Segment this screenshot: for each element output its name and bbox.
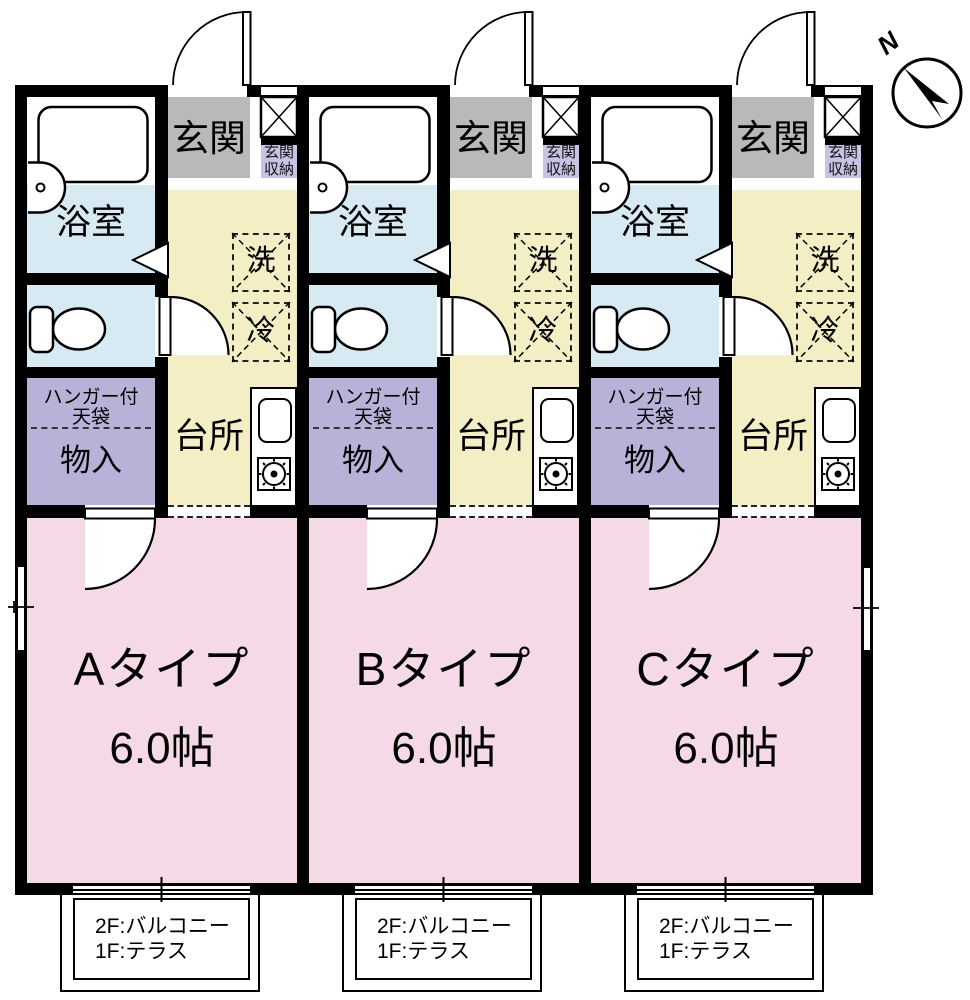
balcony-box: 2F:バルコニー 1F:テラス <box>342 893 542 992</box>
kitchen-room-boundary <box>450 505 532 518</box>
unit-b: 2F:バルコニー 1F:テラス 玄関 収納 玄関 浴室 洗 冷 台所 ハンガー付… <box>309 85 579 895</box>
entrance-door-opening <box>450 85 529 97</box>
toilet-floor <box>27 285 155 367</box>
wall-unit-divider <box>579 97 591 883</box>
bathroom-label: 浴室 <box>27 205 155 240</box>
entrance-storage-label: 玄関 収納 <box>825 145 861 178</box>
wall <box>27 505 85 518</box>
balcony-box: 2F:バルコニー 1F:テラス <box>624 893 824 992</box>
kitchen-sink <box>822 398 856 443</box>
wall <box>309 505 367 518</box>
compass-needle-icon <box>904 68 949 119</box>
floorplan: 2F:バルコニー 1F:テラス 玄関 収納 玄関 浴室 洗 冷 台所 ハンガー付… <box>0 0 970 1000</box>
entrance-label: 玄関 <box>450 120 532 157</box>
closet-label: 物入 <box>591 445 719 476</box>
wall-unit-divider <box>297 97 309 883</box>
bathroom-label: 浴室 <box>591 205 719 240</box>
entrance-window <box>261 85 297 97</box>
entrance-storage-label: 玄関 収納 <box>261 145 297 178</box>
balcony-window <box>637 884 814 895</box>
wall-exterior-left <box>15 85 27 895</box>
main-room-floor <box>27 518 297 883</box>
wall <box>309 273 450 285</box>
toilet-door-opening <box>719 297 732 357</box>
refrigerator-label: 冷 <box>796 317 854 346</box>
kitchen-stove <box>257 457 291 491</box>
wall-exterior-right <box>861 85 873 895</box>
wall <box>591 505 649 518</box>
main-room-floor <box>591 518 861 883</box>
entrance-window <box>825 85 861 97</box>
kitchen-sink <box>540 398 574 443</box>
entrance-door-opening <box>168 85 247 97</box>
entrance-label: 玄関 <box>732 120 814 157</box>
unit-type-label: Aタイプ <box>27 646 297 692</box>
unit-size-label: 6.0帖 <box>27 727 297 771</box>
unit-type-label: Bタイプ <box>309 646 579 692</box>
balcony-note: 2F:バルコニー 1F:テラス <box>355 898 532 980</box>
closet-upper-label: ハンガー付 天袋 <box>309 388 437 428</box>
compass-circle <box>893 59 961 127</box>
balcony-box: 2F:バルコニー 1F:テラス <box>60 893 260 992</box>
main-room-floor <box>309 518 579 883</box>
kitchen-label: 台所 <box>168 419 250 454</box>
balcony-window <box>73 884 250 895</box>
side-window-left <box>16 567 26 650</box>
unit-size-label: 6.0帖 <box>591 727 861 771</box>
toilet-door-opening <box>155 297 168 357</box>
refrigerator-label: 冷 <box>232 317 290 346</box>
entrance-window <box>543 85 579 97</box>
toilet-floor <box>591 285 719 367</box>
balcony-note: 2F:バルコニー 1F:テラス <box>73 898 250 980</box>
wall <box>27 367 168 378</box>
window-sash-line <box>73 889 250 891</box>
entrance-door-opening <box>732 85 811 97</box>
unit-c: 2F:バルコニー 1F:テラス 玄関 収納 玄関 浴室 洗 冷 台所 ハンガー付… <box>591 85 861 895</box>
washer-label: 洗 <box>796 247 854 276</box>
kitchen-sink <box>258 398 292 443</box>
refrigerator-label: 冷 <box>514 317 572 346</box>
toilet-floor <box>309 285 437 367</box>
kitchen-room-boundary <box>168 505 250 518</box>
washer-label: 洗 <box>232 247 290 276</box>
compass <box>893 59 961 127</box>
unit-a: 2F:バルコニー 1F:テラス 玄関 収納 玄関 浴室 洗 冷 台所 ハンガー付… <box>27 85 297 895</box>
bathroom-label: 浴室 <box>309 205 437 240</box>
washer-label: 洗 <box>514 247 572 276</box>
entrance-label: 玄関 <box>168 120 250 157</box>
wall <box>591 273 732 285</box>
wall <box>309 367 450 378</box>
window-sash-line <box>355 889 532 891</box>
closet-label: 物入 <box>309 445 437 476</box>
window-sash-line <box>637 889 814 891</box>
balcony-window <box>355 884 532 895</box>
closet-upper-label: ハンガー付 天袋 <box>591 388 719 428</box>
north-label: N <box>864 20 912 65</box>
toilet-door-opening <box>437 297 450 357</box>
side-window-right <box>862 568 872 650</box>
balcony-note: 2F:バルコニー 1F:テラス <box>637 898 814 980</box>
closet-label: 物入 <box>27 445 155 476</box>
kitchen-room-boundary <box>732 505 814 518</box>
kitchen-stove <box>821 457 855 491</box>
unit-size-label: 6.0帖 <box>309 727 579 771</box>
kitchen-label: 台所 <box>732 419 814 454</box>
unit-type-label: Cタイプ <box>591 646 861 692</box>
kitchen-label: 台所 <box>450 419 532 454</box>
closet-upper-label: ハンガー付 天袋 <box>27 388 155 428</box>
entrance-storage-label: 玄関 収納 <box>543 145 579 178</box>
wall <box>27 273 168 285</box>
kitchen-stove <box>539 457 573 491</box>
wall <box>591 367 732 378</box>
